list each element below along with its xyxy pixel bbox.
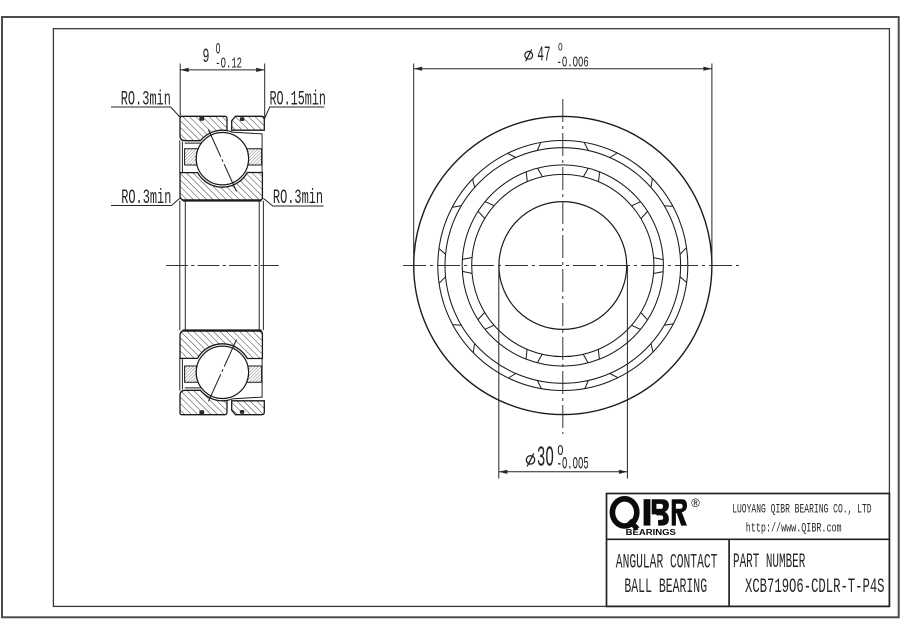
svg-text:BEARINGS: BEARINGS [626,527,677,537]
svg-text:3O: 3O [537,442,554,475]
svg-text:http://www.QIBR.com: http://www.QIBR.com [746,521,842,536]
svg-text:9: 9 [203,46,210,69]
svg-text:O: O [558,43,563,55]
svg-text:-O.OO5: -O.OO5 [557,455,589,474]
svg-text:RO.15min: RO.15min [270,88,327,111]
svg-text:47: 47 [537,45,550,68]
svg-text:RO.3min: RO.3min [273,187,323,210]
svg-text:BALL BEARING: BALL BEARING [624,576,707,599]
svg-text:®: ® [691,498,700,510]
svg-text:RO.3min: RO.3min [121,88,171,111]
svg-text:-O.OO6: -O.OO6 [557,55,589,71]
svg-text:LUOYANG QIBR BEARING CO., LTD: LUOYANG QIBR BEARING CO., LTD [732,502,871,517]
svg-text:RO.3min: RO.3min [121,187,171,210]
svg-text:XCB719O6-CDLR-T-P4S: XCB719O6-CDLR-T-P4S [745,576,885,599]
svg-text:-O.12: -O.12 [215,57,242,73]
svg-text:PART NUMBER: PART NUMBER [733,551,805,574]
svg-text:ANGULAR CONTACT: ANGULAR CONTACT [616,551,718,574]
